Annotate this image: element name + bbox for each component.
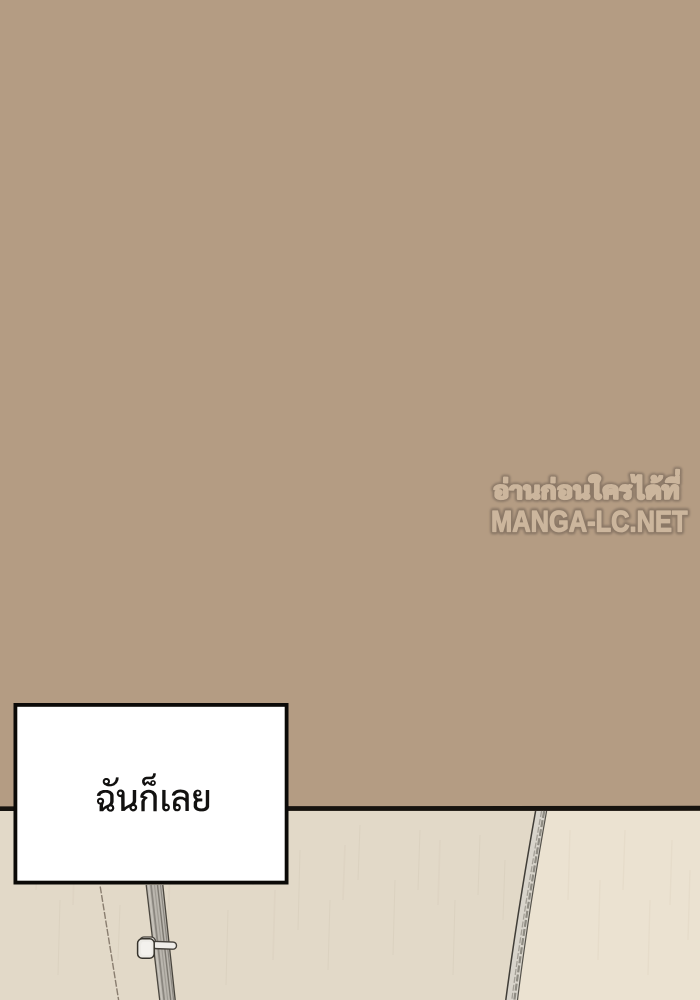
svg-text:MANGA-LC.NET: MANGA-LC.NET: [491, 505, 688, 538]
